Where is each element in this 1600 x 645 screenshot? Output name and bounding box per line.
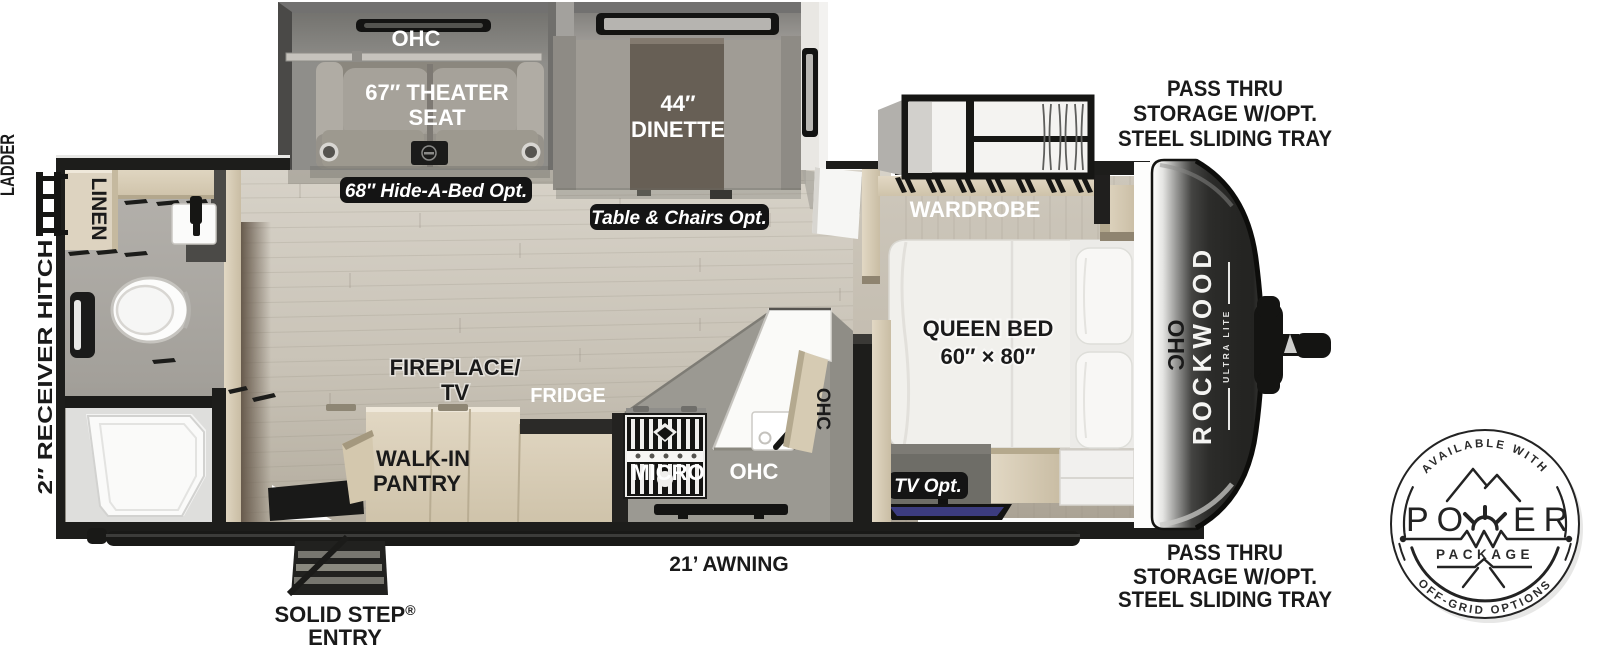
svg-text:OHC: OHC (392, 26, 441, 51)
svg-text:FIREPLACE/: FIREPLACE/ (390, 355, 521, 380)
svg-text:STEEL SLIDING TRAY: STEEL SLIDING TRAY (1118, 126, 1332, 151)
svg-text:21’ AWNING: 21’ AWNING (669, 553, 788, 576)
svg-text:PASS THRU: PASS THRU (1167, 540, 1283, 565)
svg-text:STORAGE W/OPT.: STORAGE W/OPT. (1133, 101, 1317, 126)
svg-text:DINETTE: DINETTE (631, 117, 725, 142)
svg-text:LINEN: LINEN (87, 178, 110, 241)
svg-text:44″: 44″ (660, 91, 695, 116)
svg-text:ULTRA LITE: ULTRA LITE (1221, 309, 1231, 383)
svg-text:WALK-IN: WALK-IN (376, 446, 470, 471)
svg-text:ER: ER (1513, 501, 1576, 539)
svg-text:PO: PO (1406, 501, 1471, 539)
svg-text:67″ THEATER: 67″ THEATER (365, 80, 508, 105)
svg-text:2″ RECEIVER HITCH: 2″ RECEIVER HITCH (35, 240, 57, 495)
svg-text:ENTRY: ENTRY (308, 625, 382, 645)
svg-text:STEEL SLIDING TRAY: STEEL SLIDING TRAY (1118, 587, 1332, 612)
svg-text:Table & Chairs Opt.: Table & Chairs Opt. (591, 208, 767, 229)
svg-text:QUEEN BED: QUEEN BED (923, 316, 1054, 341)
svg-text:TV: TV (441, 380, 469, 405)
svg-text:OHC: OHC (1163, 319, 1189, 370)
svg-text:WARDROBE: WARDROBE (910, 197, 1041, 222)
svg-text:TV Opt.: TV Opt. (894, 476, 962, 497)
svg-text:LADDER: LADDER (0, 134, 19, 196)
svg-text:SOLID STEP®: SOLID STEP® (274, 602, 416, 627)
svg-text:OHC: OHC (812, 388, 833, 431)
svg-text:FRIDGE: FRIDGE (530, 385, 606, 407)
svg-text:STORAGE W/OPT.: STORAGE W/OPT. (1133, 564, 1317, 589)
svg-text:60″ × 80″: 60″ × 80″ (940, 344, 1036, 369)
svg-text:OHC: OHC (730, 459, 779, 484)
svg-text:SEAT: SEAT (408, 105, 466, 130)
svg-text:68″ Hide-A-Bed Opt.: 68″ Hide-A-Bed Opt. (345, 181, 527, 202)
svg-text:PASS THRU: PASS THRU (1167, 76, 1283, 101)
svg-text:MICRO: MICRO (631, 460, 704, 485)
svg-text:ROCKWOOD: ROCKWOOD (1187, 245, 1217, 445)
svg-text:PANTRY: PANTRY (373, 471, 461, 496)
